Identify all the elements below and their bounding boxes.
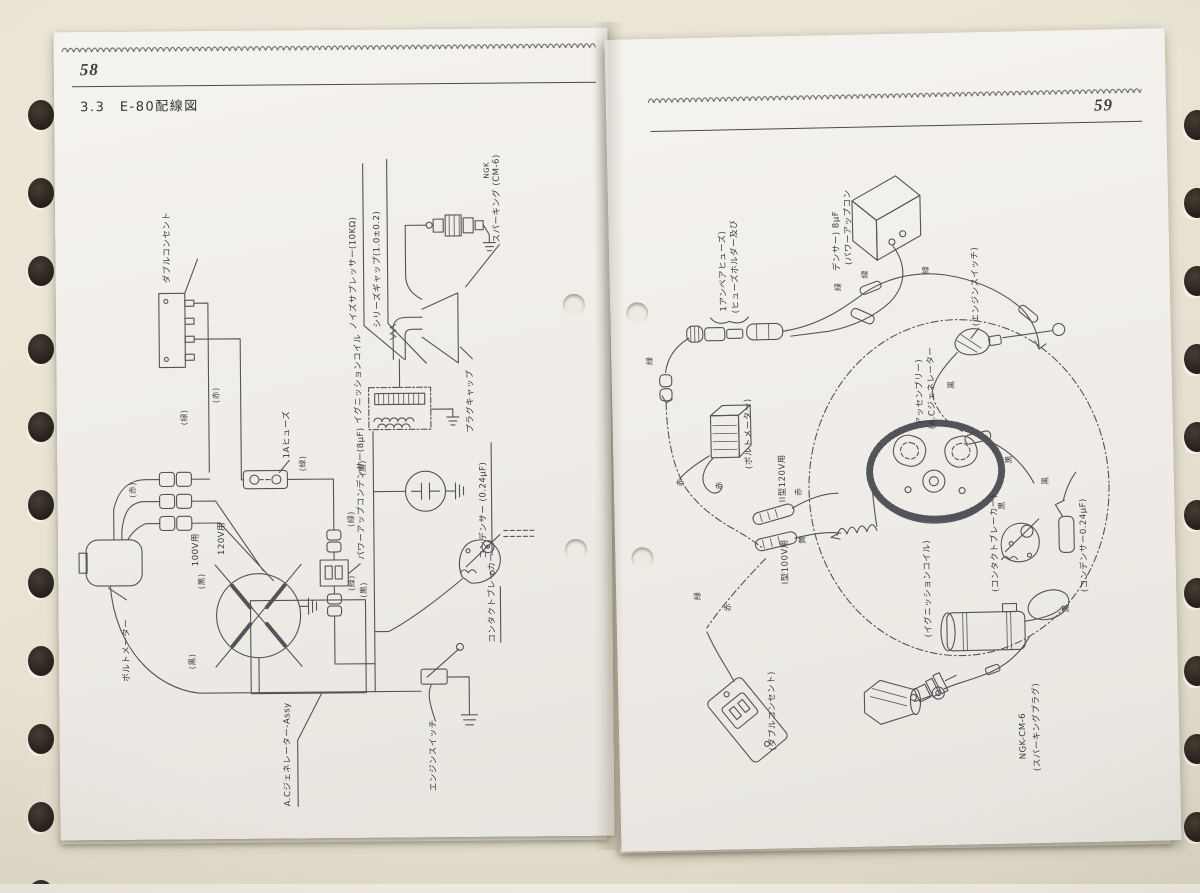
- label-1a-fuse: 1Aヒューズ: [281, 411, 292, 459]
- wire-color-red: 赤: [715, 481, 724, 490]
- wire-color-black: (黒): [358, 460, 367, 476]
- label-power-up-condenser-line1: (パワーアップコン: [843, 189, 855, 265]
- plug-cap-and-spark-plug: [864, 666, 962, 724]
- binder-hole: [1184, 188, 1200, 218]
- wire-color-green: (緑): [346, 575, 356, 591]
- label-volt-meter: (ボルトメーター): [743, 398, 754, 469]
- plug-connector-120v: [752, 503, 796, 526]
- spark-plug-symbol: [405, 215, 500, 300]
- label-engine-switch: エンジンスイッチ: [428, 719, 439, 791]
- label-100v: 100V用: [191, 533, 201, 566]
- binder-hole: [1184, 344, 1200, 374]
- wire: [335, 640, 375, 664]
- wire: [194, 303, 209, 472]
- label-fuse-holder-line1: (ヒューズホルダー及び: [728, 220, 741, 314]
- binder-hole: [1184, 734, 1200, 764]
- label-power-up-condenser-line2: デンサー) 8μF: [830, 211, 842, 271]
- ignition-coil-symbol: [369, 387, 459, 430]
- label-engine-switch: (エンジンスイッチ): [970, 247, 982, 327]
- contact-breaker-part: [1001, 519, 1040, 562]
- wire-connector: [1017, 304, 1039, 324]
- wire-color-black: 黒: [997, 501, 1006, 510]
- binder-hole: [1184, 812, 1200, 842]
- label-ignition-coil: イグニッションコイル: [352, 334, 364, 424]
- binder-hole: [28, 568, 54, 598]
- wire-color-red: (赤): [128, 482, 137, 498]
- wire-color-green: 緑: [920, 266, 930, 275]
- label-fuse-holder-line2: 1アンペアヒューズ): [717, 230, 730, 311]
- photo-background: 58 3.3 E-80配線図 ダブルコンセント (赤) (緑): [0, 0, 1200, 893]
- wire-color-red: 赤: [676, 478, 685, 487]
- binder-hole: [28, 490, 54, 520]
- wire-color-red: 赤: [723, 603, 732, 612]
- wire-color-yellow: 黄: [797, 535, 807, 544]
- label-plug-cap: プラグキャップ: [464, 370, 476, 433]
- wire-color-green: 緑: [859, 270, 869, 279]
- wire-color-black: 黒: [947, 380, 956, 389]
- label-double-outlet: (ダブルコンセント): [766, 671, 779, 751]
- ac-generator-stator: [869, 422, 1003, 525]
- wire-color-black: (黒): [359, 582, 368, 598]
- wire: [287, 479, 333, 530]
- coiled-wire: [836, 486, 877, 535]
- manual-page-58: 58 3.3 E-80配線図 ダブルコンセント (赤) (緑): [53, 28, 614, 841]
- binder-hole: [1184, 656, 1200, 686]
- wire-connector: [859, 280, 882, 295]
- contact-breaker-symbol: [374, 530, 537, 643]
- label-power-up-condenser: パワーアップコンデンサー(8μF): [355, 427, 367, 560]
- wire-color-green: (緑): [179, 410, 189, 426]
- binder-hole: [28, 100, 54, 130]
- label-ac-generator-line2: アッセンブリー): [913, 359, 925, 426]
- wire-color-black: 黒: [1041, 476, 1050, 485]
- wire-color-red: 赤: [794, 487, 803, 496]
- label-double-outlet: ダブルコンセント: [161, 212, 173, 284]
- label-condenser: (コンデンサー0.24μF): [1077, 498, 1090, 592]
- label-ignition-coil: (イグニッションコイル): [921, 540, 934, 638]
- label-noise-suppressor: ノイズサプレッサー(10KΩ): [347, 217, 359, 330]
- plug-connector-100v: [754, 531, 798, 552]
- binder-hole: [28, 334, 54, 364]
- wire: [705, 559, 766, 628]
- fuse-holder-assembly: [686, 316, 782, 342]
- label-type1-100v: I型100V用: [780, 539, 791, 584]
- label-contact-breaker: コンタクトブレーカー: [486, 553, 498, 643]
- wire: [373, 432, 375, 692]
- pictorial-wiring-diagram: (パワーアップコン デンサー) 8μF 緑 (ヒューズホルダー及び 1アンペアヒ…: [605, 28, 1182, 852]
- wire-color-green: (緑): [297, 455, 307, 471]
- binder-hole: [28, 724, 54, 754]
- wire: [194, 339, 243, 480]
- power-up-condenser-box: [851, 175, 921, 260]
- plug-cap-symbol: [390, 293, 473, 388]
- arrowhead: [1035, 341, 1046, 349]
- connector-row: [141, 472, 220, 531]
- wire-color-green: (緑): [346, 511, 356, 527]
- wire-color-black: (黒): [188, 653, 197, 669]
- table-edge: [0, 884, 1200, 893]
- callout-line: [363, 163, 405, 359]
- wire-connector: [660, 375, 673, 401]
- binder-hole: [28, 646, 54, 676]
- label-sparking-plug-line1: (スパーキングプラグ): [1030, 683, 1043, 772]
- binder-hole: [28, 802, 54, 832]
- label-ac-generator: A.Cジェネレーター-Assy: [282, 702, 293, 806]
- fuse-symbol: [243, 460, 289, 488]
- binder-hole: [28, 412, 54, 442]
- wire-color-black: 黒: [1061, 604, 1070, 613]
- label-type2-120v: II型120V用: [777, 454, 788, 502]
- wire: [679, 456, 709, 479]
- wire: [665, 338, 690, 372]
- wire: [707, 631, 734, 682]
- arrowhead: [662, 396, 672, 403]
- label-ac-generator-line1: (A.Cジェネレーター: [926, 346, 938, 429]
- label-sparking-plug-line2: NGK-CM-6: [1018, 713, 1029, 760]
- label-series-gap: シリーズギャップ(1.0±0.2): [371, 211, 383, 328]
- manual-page-59: 59 (パワーアップコン デンサー) 8μF 緑: [605, 28, 1182, 852]
- binder-hole: [1184, 422, 1200, 452]
- condenser-symbol: [373, 443, 492, 556]
- binder-hole: [28, 178, 54, 208]
- wire: [792, 493, 841, 538]
- binder-hole: [1184, 266, 1200, 296]
- wiring-schematic-e80: ダブルコンセント (赤) (緑) (赤): [53, 28, 614, 841]
- binder-hole: [1184, 500, 1200, 530]
- wire: [782, 271, 1040, 354]
- ignition-coil-part: [930, 584, 1075, 699]
- binder-hole: [28, 256, 54, 286]
- wire-color-green: 緑: [692, 592, 702, 601]
- engine-switch-part: [955, 323, 1066, 355]
- wire-color-green: 緑: [833, 283, 843, 292]
- wire-color-red: (赤): [212, 387, 221, 403]
- label-volt-meter: ボルトメーター: [122, 619, 133, 682]
- binder-hole: [1184, 578, 1200, 608]
- label-120v: 120V用: [217, 522, 227, 555]
- binder-hole: [1184, 110, 1200, 140]
- label-sparking-plug: スパーキング (CM-6): [491, 154, 503, 242]
- condenser-part: [1055, 472, 1078, 552]
- arrowhead: [831, 533, 840, 539]
- label-ngk: NGK: [483, 162, 491, 179]
- engine-switch-symbol: [421, 643, 478, 725]
- label-condenser: コンデンサー (0.24μF): [477, 462, 489, 559]
- wire-color-black: (黒): [197, 573, 206, 589]
- wire-color-black: 黒: [1004, 455, 1013, 464]
- wire-color-green: 緑: [644, 356, 654, 365]
